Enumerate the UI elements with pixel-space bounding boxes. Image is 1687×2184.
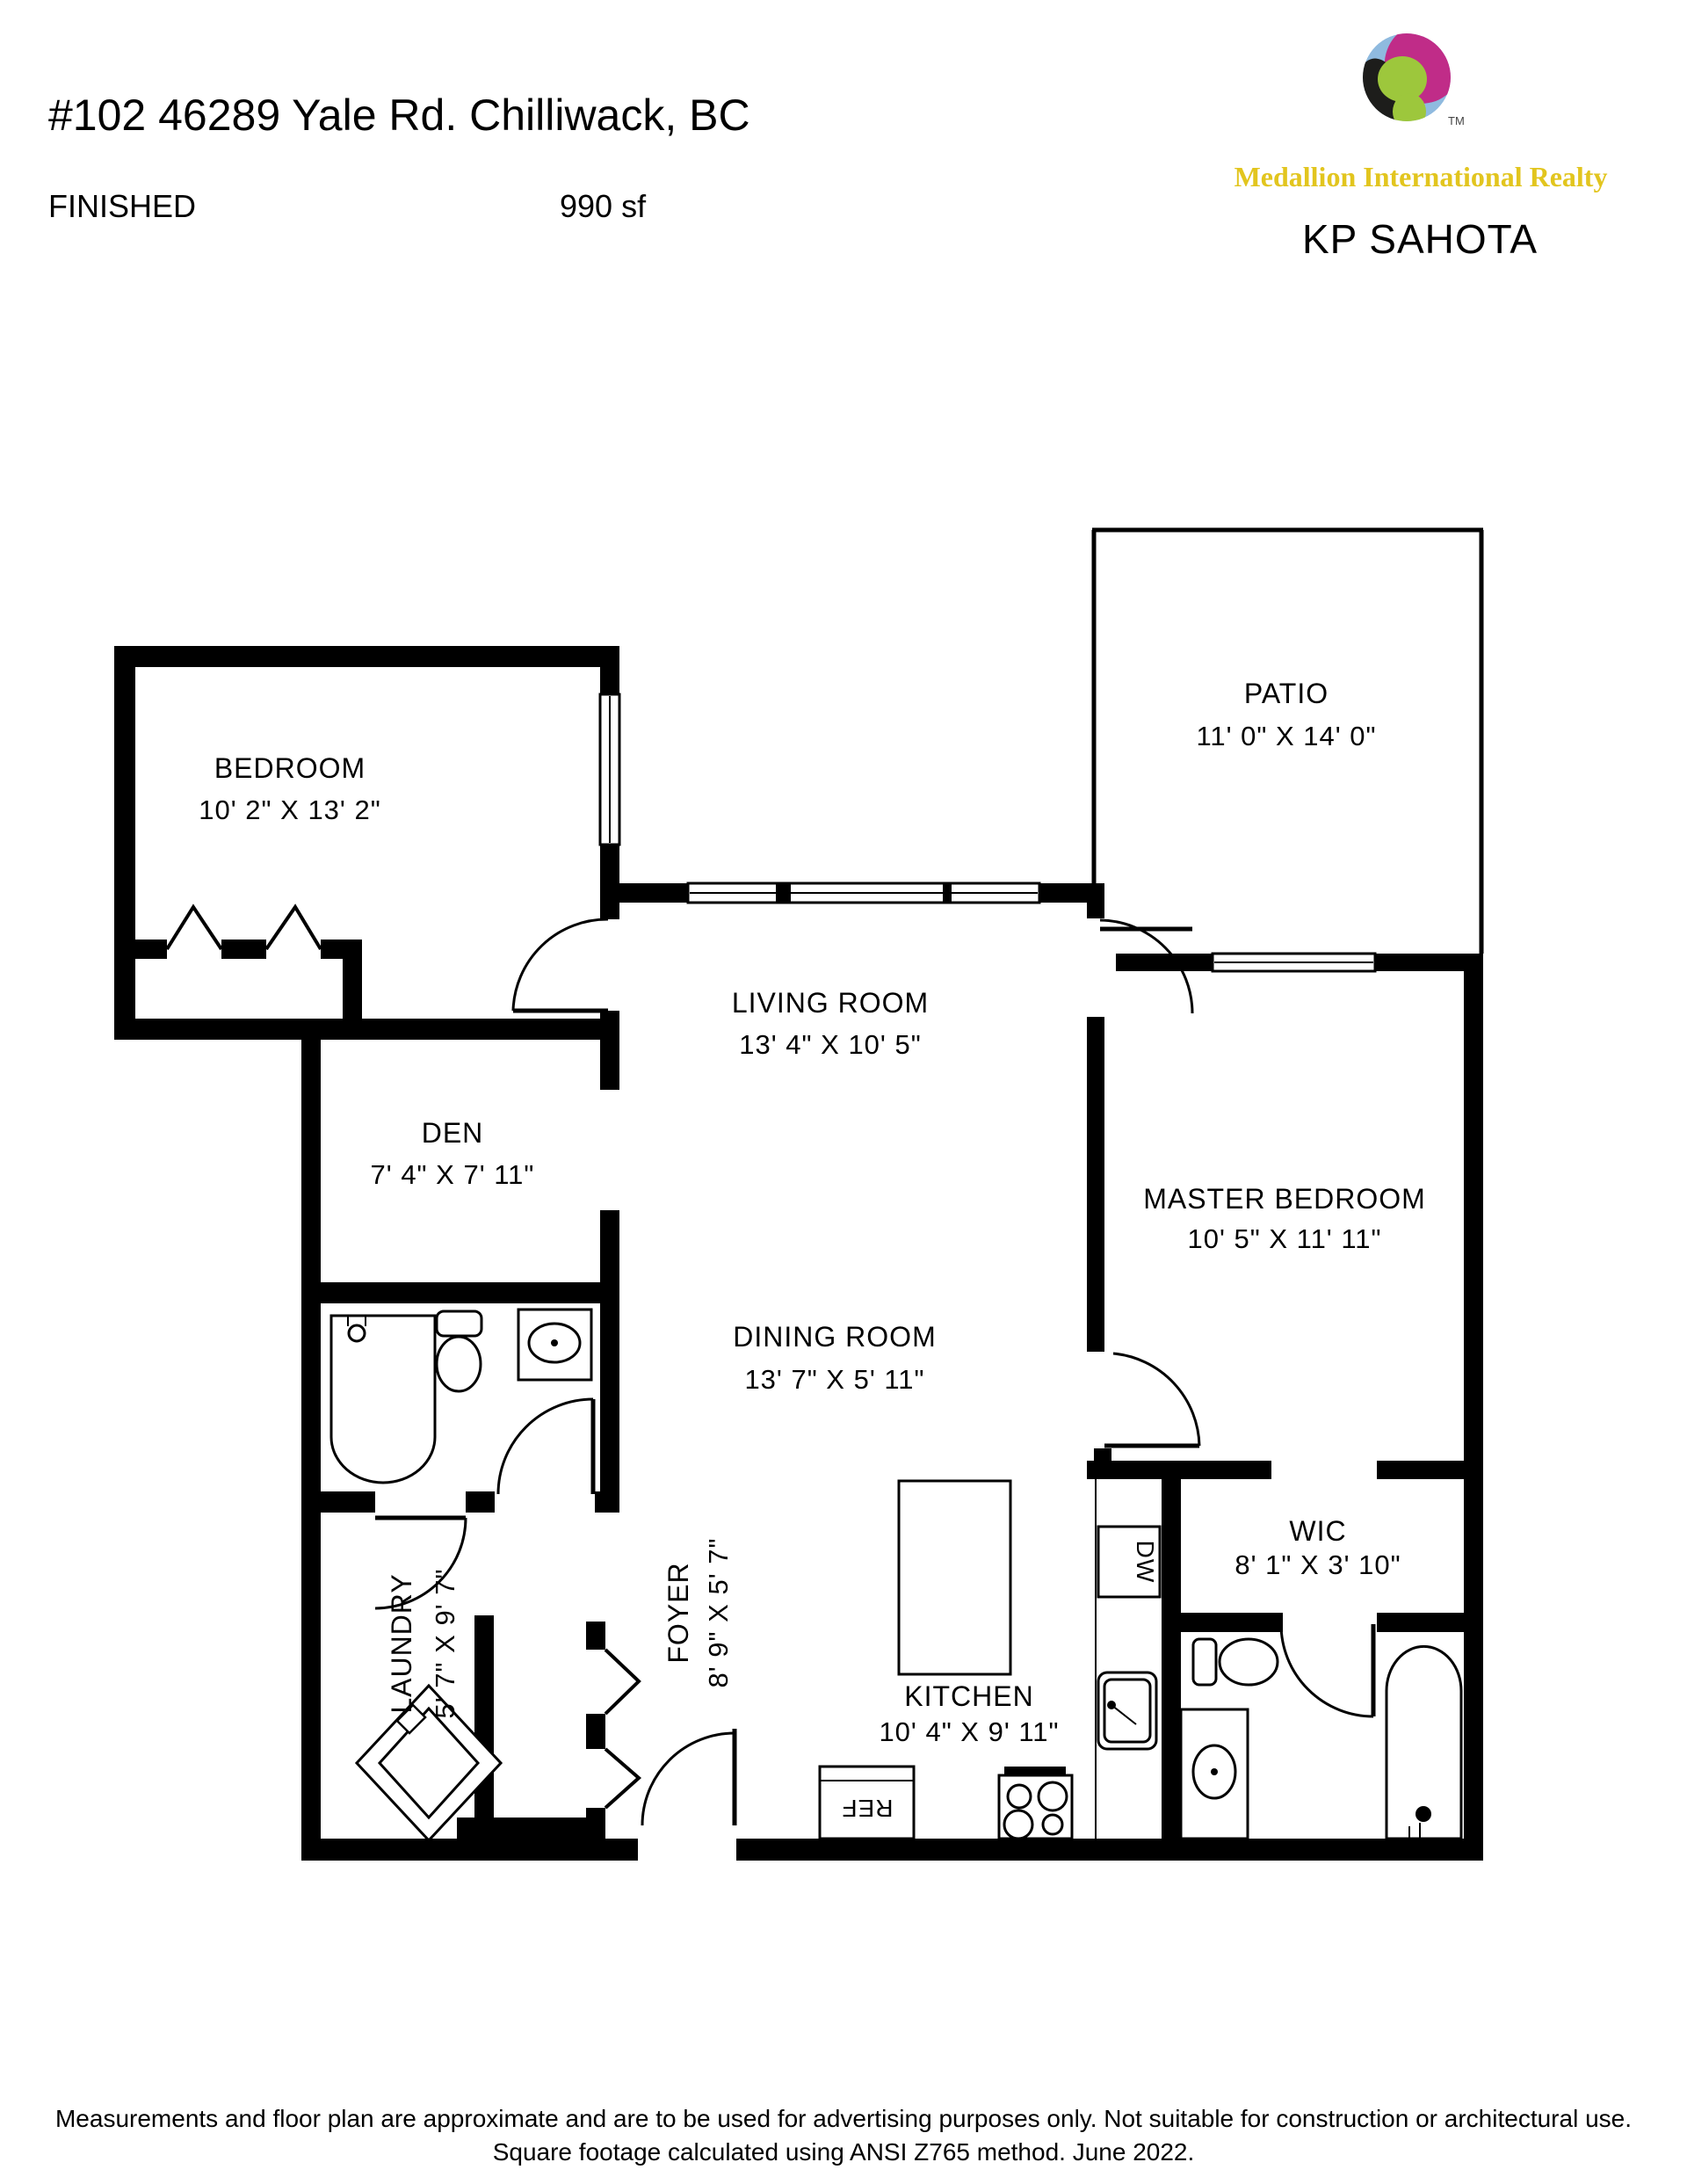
brand-name: Medallion International Realty — [1234, 161, 1608, 192]
main-bath-door — [498, 1399, 593, 1494]
living-room-window — [688, 883, 1039, 903]
wic-label: WIC — [1289, 1515, 1346, 1547]
dishwasher: DW — [1098, 1527, 1160, 1597]
bedroom-window — [600, 694, 619, 845]
den-dims: 7' 4" X 7' 11" — [371, 1159, 535, 1190]
kitchen-dims: 10' 4" X 9' 11" — [879, 1716, 1059, 1747]
stove — [999, 1767, 1072, 1839]
kitchen-island — [899, 1481, 1010, 1674]
floor-plan-page: #102 46289 Yale Rd. Chilliwack, BC FINIS… — [0, 0, 1687, 2184]
bathroom-sink — [518, 1310, 591, 1380]
master-bedroom-dims: 10' 5" X 11' 11" — [1187, 1223, 1381, 1254]
refrigerator: REF — [820, 1767, 914, 1839]
wic-dims: 8' 1" X 3' 10" — [1234, 1549, 1401, 1580]
brand-logo-icon: TM Medallion International Realty KP SAH… — [1234, 12, 1608, 262]
living-room-dims: 13' 4" X 10' 5" — [739, 1029, 921, 1060]
refrigerator-label: REF — [842, 1795, 894, 1822]
dining-room-label: DINING ROOM — [733, 1321, 936, 1353]
patio-dims: 11' 0" X 14' 0" — [1196, 721, 1376, 751]
room-labels: BEDROOM 10' 2" X 13' 2" PATIO 11' 0" X 1… — [199, 678, 1426, 1747]
master-bedroom-door — [1104, 1353, 1199, 1446]
dining-room-dims: 13' 7" X 5' 11" — [744, 1364, 924, 1395]
agent-name: KP SAHOTA — [1302, 216, 1538, 262]
trademark-label: TM — [1448, 114, 1465, 127]
entry-door — [642, 1729, 735, 1825]
master-toilet — [1193, 1639, 1278, 1685]
status-label: FINISHED — [48, 188, 196, 224]
master-sink — [1181, 1709, 1248, 1839]
laundry-label: LAUNDRY — [386, 1573, 417, 1713]
disclaimer-line-1: Measurements and floor plan are approxim… — [55, 2105, 1632, 2132]
header: #102 46289 Yale Rd. Chilliwack, BC FINIS… — [48, 91, 750, 224]
kitchen-sink — [1098, 1672, 1156, 1749]
master-bedroom-label: MASTER BEDROOM — [1143, 1183, 1426, 1215]
bedroom-door — [513, 919, 608, 1011]
master-bathtub — [1387, 1646, 1461, 1839]
bedroom-label: BEDROOM — [214, 752, 366, 784]
area-label: 990 sf — [560, 188, 647, 224]
laundry-dims: 5' 7" X 9' 7" — [430, 1569, 460, 1719]
living-room-label: LIVING ROOM — [732, 987, 929, 1019]
dishwasher-label: DW — [1132, 1541, 1159, 1584]
bedroom-dims: 10' 2" X 13' 2" — [199, 795, 380, 825]
master-bedroom-window — [1213, 954, 1375, 971]
foyer-label: FOYER — [662, 1562, 694, 1663]
page-title: #102 46289 Yale Rd. Chilliwack, BC — [48, 91, 750, 140]
disclaimer-line-2: Square footage calculated using ANSI Z76… — [493, 2138, 1195, 2166]
patio-label: PATIO — [1244, 678, 1329, 709]
master-bath-door — [1281, 1624, 1373, 1716]
den-label: DEN — [422, 1117, 484, 1149]
footer-disclaimer: Measurements and floor plan are approxim… — [55, 2105, 1632, 2166]
toilet — [437, 1311, 481, 1391]
bathtub — [331, 1316, 435, 1483]
kitchen-label: KITCHEN — [904, 1680, 1033, 1712]
foyer-dims: 8' 9" X 5' 7" — [703, 1538, 734, 1688]
